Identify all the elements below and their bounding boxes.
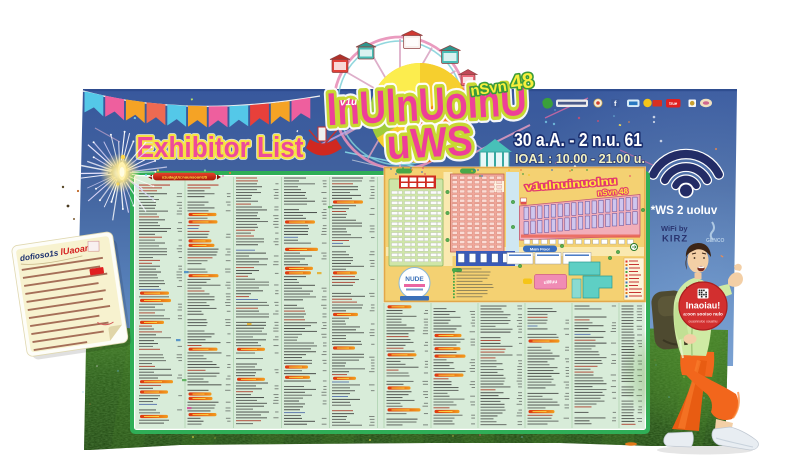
svg-text:s1udagUs:nounsoonUS: s1udagUs:nounsoonUS: [162, 174, 208, 179]
svg-text:uWuu: uWuu: [543, 279, 557, 286]
svg-text:WiFi by: WiFi by: [661, 224, 688, 233]
svg-text:Exhibitor List: Exhibitor List: [137, 132, 304, 164]
svg-text:a:oon sooiso nulo: a:oon sooiso nulo: [683, 312, 723, 317]
svg-text:30 a.A. - 2 n.u. 61: 30 a.A. - 2 n.u. 61: [514, 130, 642, 150]
svg-text:uWS: uWS: [386, 117, 474, 168]
svg-text:true: true: [669, 101, 678, 106]
svg-text:v1u: v1u: [340, 97, 358, 109]
svg-text:*WS 2 uoIuv: *WS 2 uoIuv: [651, 205, 718, 217]
svg-text:Inaoiau!: Inaoiau!: [686, 301, 721, 311]
svg-text:ouaonnuloo ooualnu: ouaonnuloo ooualnu: [689, 320, 718, 324]
svg-text:NUDE: NUDE: [405, 276, 424, 283]
svg-text:Main Floor: Main Floor: [530, 247, 551, 252]
svg-text:GENCO: GENCO: [706, 238, 724, 244]
svg-text:KIRZ: KIRZ: [662, 234, 688, 245]
svg-text:IOA1 : 10.00 - 21.00 u.: IOA1 : 10.00 - 21.00 u.: [515, 152, 645, 166]
